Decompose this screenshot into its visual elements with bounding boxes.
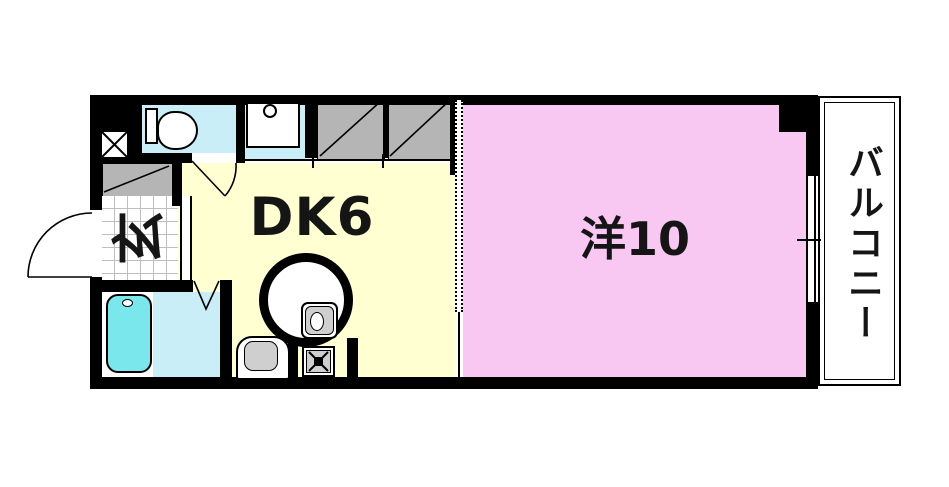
closet — [388, 98, 452, 160]
wall-segment — [90, 280, 193, 292]
wall-segment — [172, 153, 182, 206]
wall-segment — [90, 377, 818, 389]
kitchen-sink-drain-icon — [310, 312, 324, 331]
balcony-label: バルコニー — [836, 126, 880, 362]
wall-line — [458, 312, 460, 377]
pipe-space-icon — [100, 130, 129, 159]
bathtub-handle-icon — [122, 299, 133, 307]
dk-room-label: DK6 — [237, 191, 387, 244]
washing-machine-drum-icon — [244, 341, 278, 371]
entrance-door-swing-icon — [28, 213, 92, 277]
wall-segment — [236, 95, 245, 163]
wall-segment — [347, 338, 358, 381]
wall-segment — [806, 302, 818, 388]
toilet-bowl-icon — [157, 111, 198, 150]
wall-segment — [220, 280, 232, 377]
closet — [317, 98, 385, 160]
wall-joint-tick — [382, 154, 384, 168]
wall-segment — [383, 98, 388, 158]
wall-line — [243, 159, 452, 161]
window-center-tick — [797, 239, 821, 241]
wall-joint-tick — [312, 154, 314, 168]
entrance-label: 玄 — [113, 204, 167, 272]
shoe-closet — [102, 163, 174, 197]
wall-segment — [806, 95, 818, 176]
bathroom-wet-floor — [153, 292, 220, 377]
sliding-partition — [455, 100, 463, 312]
floorplan: DK6 洋10 玄 バルコニー — [0, 0, 949, 487]
wall-segment — [142, 153, 192, 163]
wall-segment — [305, 95, 317, 158]
wall-segment — [90, 277, 102, 388]
faucet-icon — [263, 104, 277, 118]
western-room-label: 洋10 — [560, 216, 710, 262]
stove-burner-plate-icon — [306, 350, 331, 373]
entrance-step — [180, 196, 192, 280]
